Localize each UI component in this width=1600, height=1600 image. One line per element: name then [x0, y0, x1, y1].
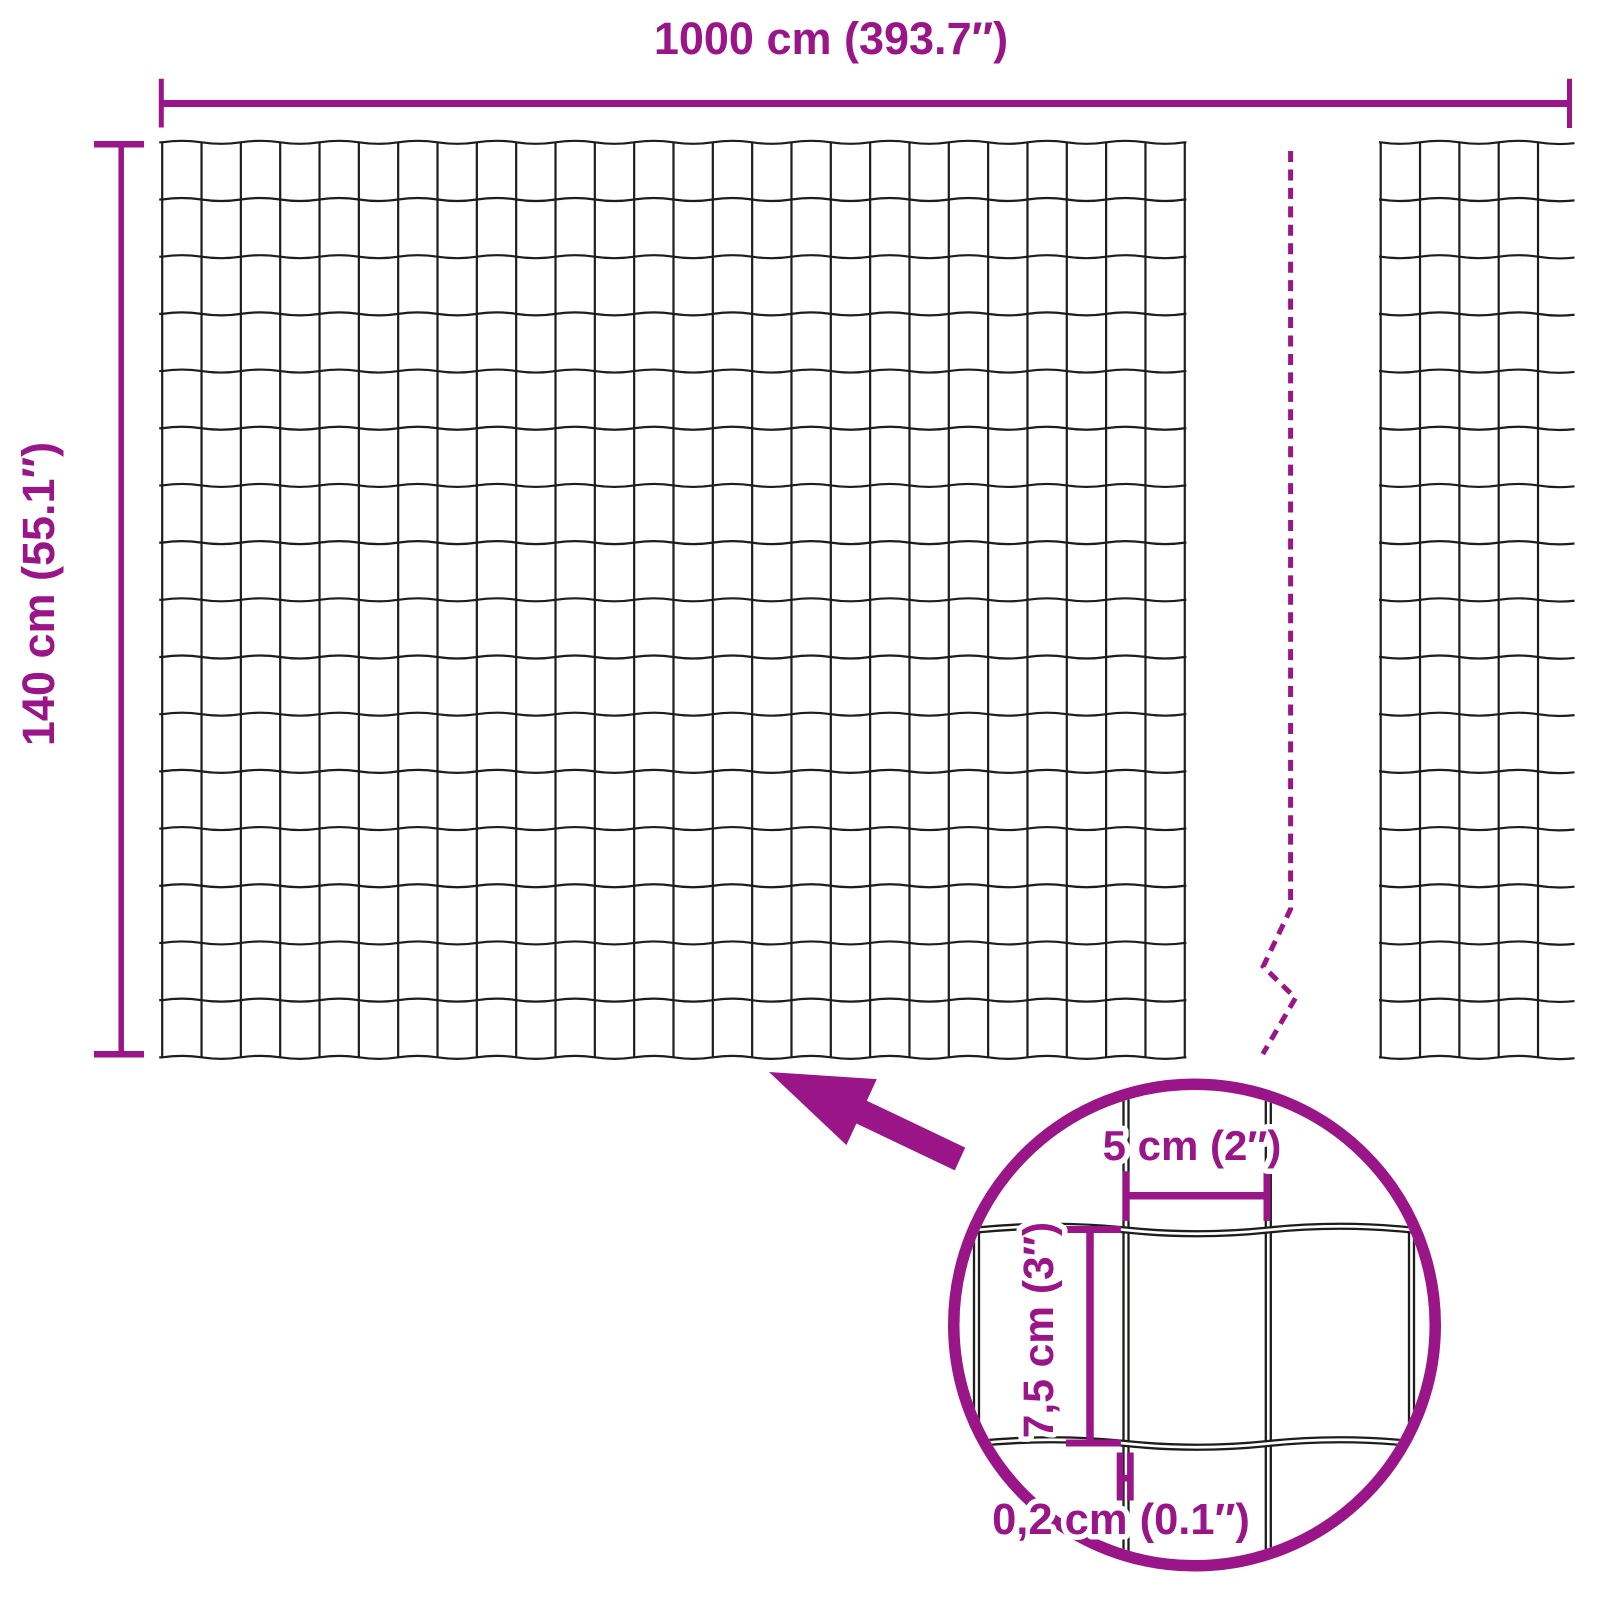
svg-text:0,2 cm (0.1″): 0,2 cm (0.1″): [992, 1496, 1250, 1544]
svg-text:1000 cm (393.7″): 1000 cm (393.7″): [654, 13, 1008, 64]
svg-text:7,5 cm (3″): 7,5 cm (3″): [1016, 1222, 1063, 1438]
svg-text:5 cm (2″): 5 cm (2″): [1103, 1122, 1282, 1169]
svg-text:140 cm (55.1″): 140 cm (55.1″): [13, 442, 64, 746]
